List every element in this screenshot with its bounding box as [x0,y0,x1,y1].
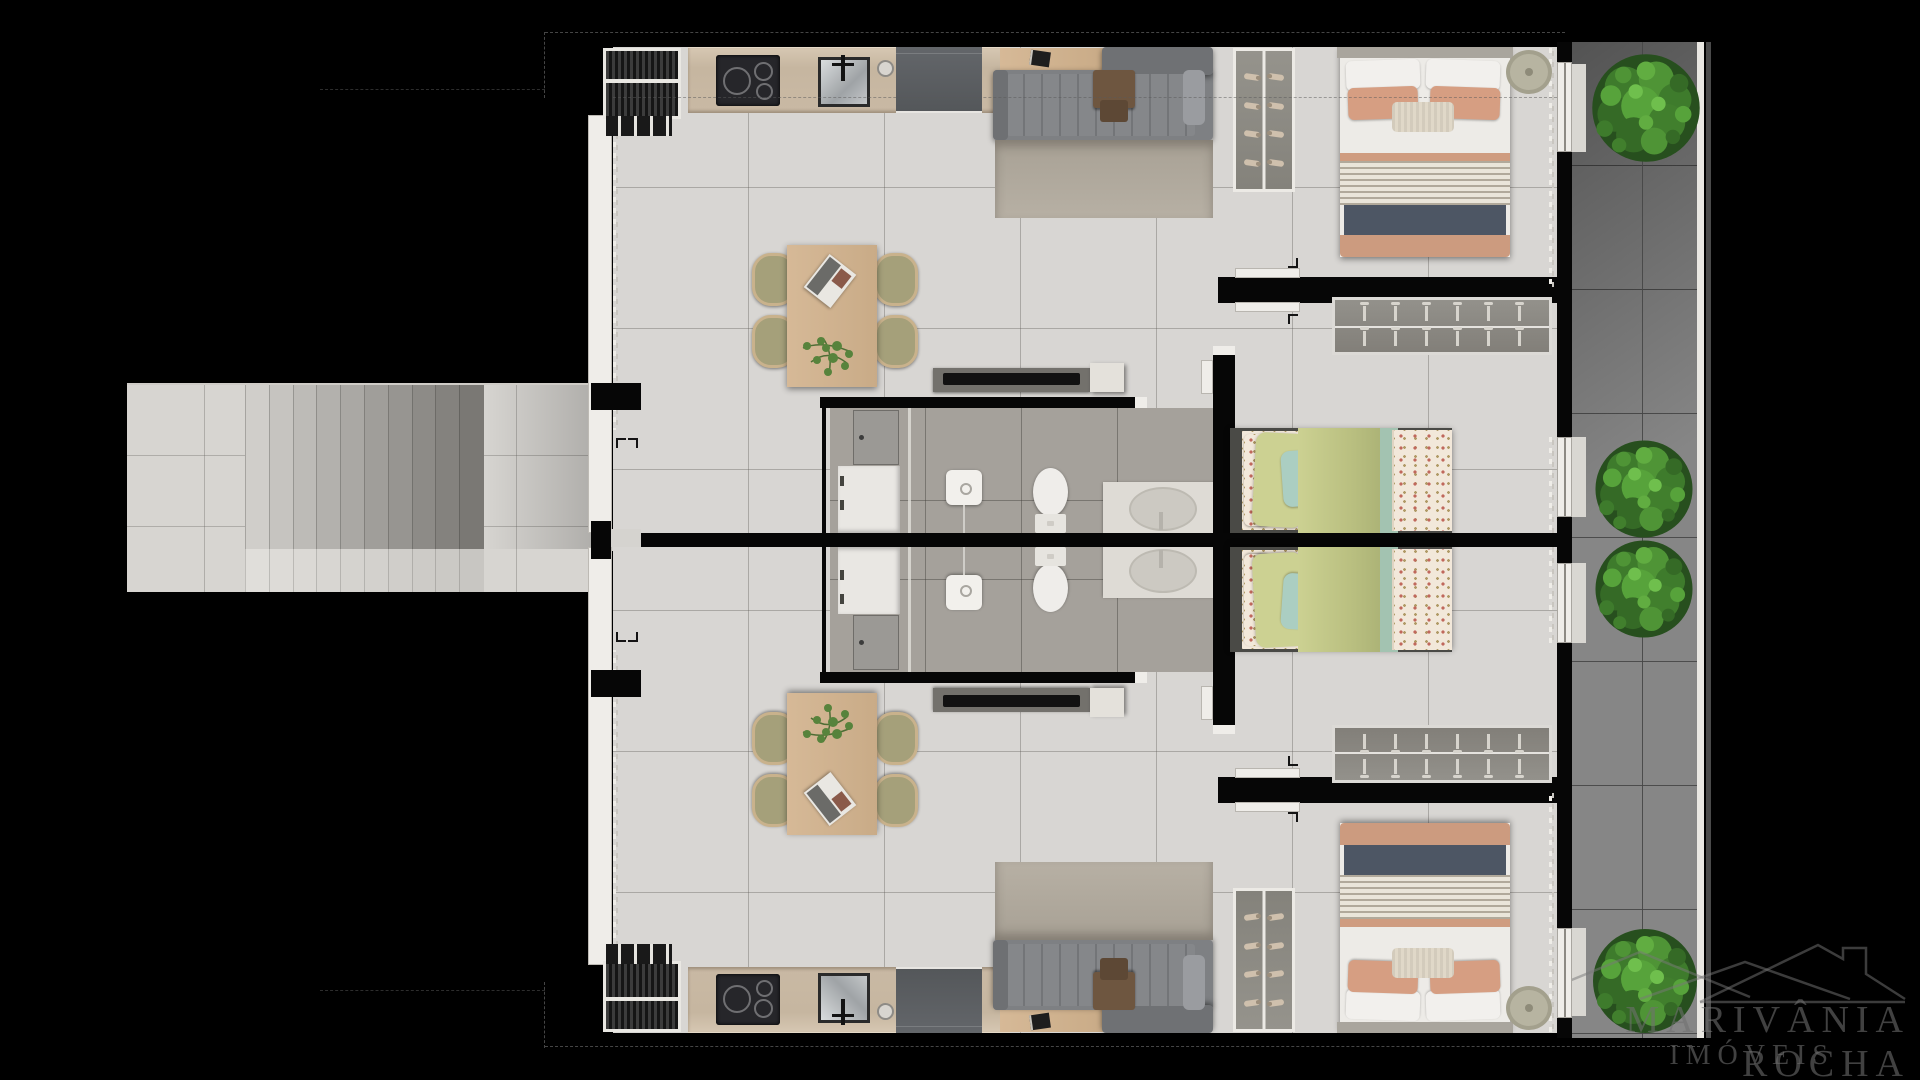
duvet-edge-salmon [1340,919,1510,927]
stool [1090,688,1124,717]
stair-flight-upper [245,385,483,549]
throw-blanket-fold [1100,100,1128,122]
blanket-salmon-foot [1340,823,1510,845]
ac-grille [603,48,681,119]
balcony-door [1557,62,1572,152]
shoe [1268,73,1285,81]
single-bed [1230,547,1452,652]
area-rug [995,862,1213,940]
clothes-hanger [1456,306,1459,321]
fridge-seam [896,53,982,54]
shower-arm [963,547,965,575]
stair-step [435,385,460,549]
ac-grille-bar [606,997,678,1001]
refrigerator [896,47,982,113]
door-swing-mark [1288,314,1298,324]
balcony-door-mullion [1564,929,1566,1017]
balcony-door-mullion [1564,63,1566,151]
shower-head [946,470,982,505]
dining-chair [874,315,918,368]
bench-cushion [943,373,1080,385]
west-window-wall [588,115,612,533]
washing-machine [838,466,900,533]
balcony-door-mullion [1564,564,1566,642]
stairwell [127,383,591,592]
hanger-row [1335,327,1549,349]
toilet-tank [1035,514,1066,533]
sink-faucet-handle [832,63,854,66]
sink-faucet-handle [832,1014,854,1017]
clothes-hanger [1363,759,1366,774]
balcony-threshold [1572,563,1586,643]
plant-bush-icon [1588,433,1700,545]
shoe [1244,159,1261,167]
vanity-faucet [1159,512,1163,530]
clothes-rail [1332,725,1552,783]
clothes-hanger [1425,306,1428,321]
headboard [1337,47,1513,58]
bed-lumbar-pillow [1392,102,1454,132]
shoe-rack [1233,888,1295,1032]
bench [933,368,1090,392]
hanger-row [1335,755,1549,777]
clothes-hanger [1518,331,1521,346]
shoe-rack-divider [1263,51,1266,189]
clothes-hanger [1487,759,1490,774]
table-plant-sprig [793,698,863,762]
striped-duvet [1340,875,1510,919]
dining-chair [874,712,918,765]
stair-step [316,385,341,549]
shoe-rack [1233,48,1295,192]
shoe-rack-divider [1263,891,1266,1029]
clothes-hanger [1363,331,1366,346]
wall-stair-corner [591,383,641,410]
washer-controls [840,570,844,580]
toilet [1033,564,1068,612]
striped-duvet [1340,161,1510,205]
toilet-tank [1035,547,1066,566]
stair-step [293,549,318,592]
cooktop-ring [754,999,773,1018]
west-window-wall [588,547,612,965]
projection-line [613,97,1557,98]
washing-machine [838,547,900,614]
floral-blanket [1392,549,1452,650]
headboard [1337,1022,1513,1033]
shoe [1268,102,1285,110]
clothes-hanger [1394,734,1397,749]
vanity-basin [1129,487,1197,531]
clothes-hanger [1487,734,1490,749]
stool [1090,363,1124,392]
ac-grille-vent [606,944,672,964]
shoe [1244,913,1261,921]
bedroom2-curtain [1549,547,1555,643]
floor-plan-canvas: MARIVÂNIA ROCHA IMÓVEIS [0,0,1920,1080]
stair-step [293,385,318,549]
washer-controls [840,500,844,510]
clothes-hanger [1425,759,1428,774]
bedroom2-door-leaf [1201,686,1213,720]
toilet-flush-button [1047,521,1054,526]
balcony-plant [1584,46,1708,170]
console-table [1000,48,1105,72]
door-handle [859,435,864,440]
stair-step [459,385,484,549]
sofa-pillow [1183,955,1205,1010]
shower-glass [908,547,911,672]
clothes-hanger [1363,306,1366,321]
door-swing-mark [1288,756,1298,766]
cooktop-ring [754,62,773,81]
bedroom1-curtain [1549,48,1555,288]
blanket-salmon-foot [1340,235,1510,257]
shoe [1268,942,1285,950]
induction-cooktop [716,55,780,106]
clothes-hanger [1518,306,1521,321]
bedroom2-curtain [1549,437,1555,533]
sink-faucet [841,999,845,1025]
shoe [1268,159,1285,167]
dining-chair [874,774,918,827]
balcony-door-mullion [1564,438,1566,516]
duvet-navy-band [1344,845,1506,875]
refrigerator [896,967,982,1033]
unit-bottom [588,540,1572,1050]
shoe [1244,73,1261,81]
induction-cooktop [716,974,780,1025]
cooktop-ring [723,67,751,95]
round-side-table [1506,986,1552,1030]
stair-step [340,549,365,592]
shower-glass [908,408,911,533]
double-bed [1340,47,1510,257]
door-swing-mark [628,438,638,448]
washer-controls [840,594,844,604]
clothes-hanger [1394,306,1397,321]
stair-landing-shadow [483,385,591,549]
projection-line [545,32,1565,33]
sliding-door [1235,268,1300,278]
sliding-door [1235,768,1300,778]
dining-chair [874,253,918,306]
door-swing-mark [616,632,626,642]
stair-step [388,549,413,592]
duvet-edge-salmon [1340,153,1510,161]
cooktop-ring [723,985,751,1013]
stair-step [245,549,270,592]
shoe [1268,970,1285,978]
soap-dispenser [877,1003,894,1020]
bed-lumbar-pillow [1392,948,1454,978]
balcony-outer-edge [1706,42,1711,1038]
stair-step [412,385,437,549]
round-side-table [1506,50,1552,94]
shower-head-center [960,585,972,597]
clothes-rail [1332,297,1552,355]
stair-step [245,385,270,549]
bedroom2-door-leaf [1201,360,1213,394]
bedroom1-curtain [1549,792,1555,1032]
stair-step [459,549,484,592]
shoe [1268,999,1285,1007]
bathroom-door-leaf [853,410,899,465]
clothes-hanger [1425,331,1428,346]
stair-step [316,549,341,592]
door-handle [859,640,864,645]
clothes-hanger [1425,734,1428,749]
toilet [1033,468,1068,516]
clothes-hanger [1456,759,1459,774]
console-book [1029,1013,1051,1031]
stair-step [388,385,413,549]
fridge-seam [896,1026,982,1027]
green-duvet [1298,428,1388,533]
sofa-arm [993,940,1008,1010]
door-swing-mark [1288,812,1298,822]
balcony-door [1557,437,1572,517]
shower-head [946,575,982,610]
side-table-center [1525,68,1533,76]
bathroom-door-jamb [1135,672,1147,683]
single-bed [1230,428,1452,533]
hanger-row [1335,731,1549,753]
console-table [1000,1008,1105,1032]
vanity-counter [1103,547,1216,598]
stair-step [340,385,365,549]
bathroom-door-jamb [1135,397,1147,408]
balcony-door [1557,563,1572,643]
sliding-door [1235,302,1300,312]
sofa-arm [993,70,1008,140]
clothes-hanger [1487,306,1490,321]
stair-step [269,385,294,549]
bathroom-north-wall [820,397,1135,408]
sink-faucet [841,55,845,81]
stair-step [364,549,389,592]
vanity-basin [1129,549,1197,593]
toilet-flush-button [1047,554,1054,559]
bathroom-west-wall [822,408,826,533]
balcony-plant [1588,433,1700,545]
hanger-row [1335,303,1549,325]
kitchen-sink [818,57,870,107]
clothes-hanger [1394,759,1397,774]
bench-cushion [943,695,1080,707]
floral-blanket [1392,430,1452,531]
shower-head-center [960,483,972,495]
door-swing-mark [1288,258,1298,268]
shower-arm [963,505,965,533]
wall-stair-corner [591,670,641,697]
projection-line [320,89,545,90]
shoe [1244,942,1261,950]
plant-bush-icon [1588,533,1700,645]
area-rug [995,140,1213,218]
ac-grille-vent [606,116,672,136]
console-book [1029,50,1051,68]
cooktop-ring [756,980,773,997]
washer-controls [840,476,844,486]
balcony-plant [1588,533,1700,645]
vanity-faucet [1159,550,1163,568]
clothes-hanger [1487,331,1490,346]
throw-blanket-fold [1100,958,1128,980]
ac-grille [603,961,681,1032]
unit-top [588,30,1572,540]
door-swing-mark [616,438,626,448]
stair-step [435,549,460,592]
shoe [1268,913,1285,921]
ac-grille-bar [606,79,678,83]
clothes-hanger [1456,331,1459,346]
stair-step [412,549,437,592]
bench [933,688,1090,712]
balcony-door [1557,928,1572,1018]
balcony-threshold [1572,437,1586,517]
bathroom-door-leaf [853,615,899,670]
shoe [1268,130,1285,138]
clothes-hanger [1363,734,1366,749]
kitchen-sink [818,973,870,1023]
bathroom-north-wall [820,672,1135,683]
shoe [1244,970,1261,978]
stair-step [269,549,294,592]
side-table-center [1525,1004,1533,1012]
door-swing-mark [628,632,638,642]
wall-entry-stub [591,540,611,559]
sliding-door [1235,802,1300,812]
shoe [1244,130,1261,138]
soap-dispenser [877,60,894,77]
stair-step [364,385,389,549]
clothes-hanger [1394,331,1397,346]
shoe [1244,999,1261,1007]
vanity-counter [1103,482,1216,533]
plant-bush-icon [1584,46,1708,170]
duvet-navy-band [1344,205,1506,235]
bedroom2-door-jamb [1213,725,1235,734]
table-plant-sprig [793,318,863,382]
projection-line [320,990,545,991]
green-duvet [1298,547,1388,652]
clothes-hanger [1456,734,1459,749]
clothes-hanger [1518,734,1521,749]
stair-flight-lower [245,549,483,592]
double-bed [1340,823,1510,1033]
projection-line [544,982,545,1048]
bathroom-west-wall [822,547,826,672]
bedroom2-door-jamb [1213,346,1235,355]
shoe [1244,102,1261,110]
clothes-hanger [1518,759,1521,774]
